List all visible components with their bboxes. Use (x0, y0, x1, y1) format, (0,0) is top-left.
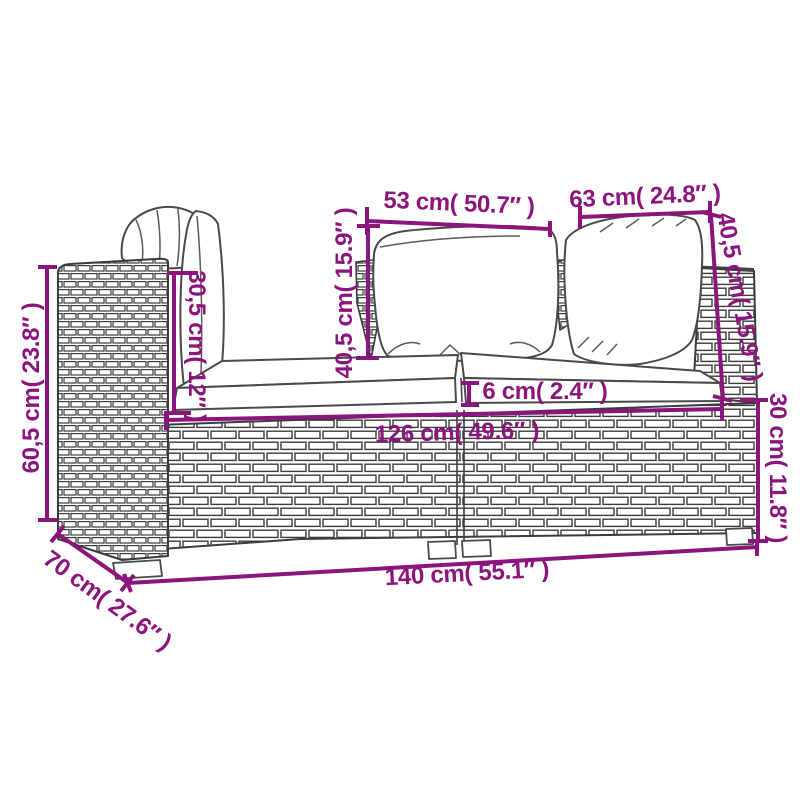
armrest-left (58, 259, 168, 560)
dim-label-seat-width: 126 cm( 49.6″ ) (357, 416, 558, 449)
foot-middle-right (462, 540, 491, 557)
dimension-diagram: 53 cm( 50.7″ ) 63 cm( 24.8″ ) 40,5 cm( 1… (0, 0, 800, 800)
middle-back-pillow (373, 226, 558, 361)
dim-label-backrest-height-left: 30,5 cm( 12″ ) (182, 246, 210, 446)
sofa-line-art (0, 0, 800, 800)
right-back-pillow (564, 214, 702, 364)
dim-label-base-height-right: 30 cm( 11.8″ ) (763, 368, 791, 568)
dim-label-seat-cushion-thickness: 6 cm( 2.4″ ) (445, 378, 645, 406)
sofa-drawing (58, 207, 757, 579)
dim-label-back-cushion-height-middle: 40,5 cm( 15.9″ ) (331, 193, 359, 393)
foot-middle-left (428, 541, 456, 559)
dim-label-total-height-left: 60,5 cm( 23.8″ ) (18, 288, 46, 488)
